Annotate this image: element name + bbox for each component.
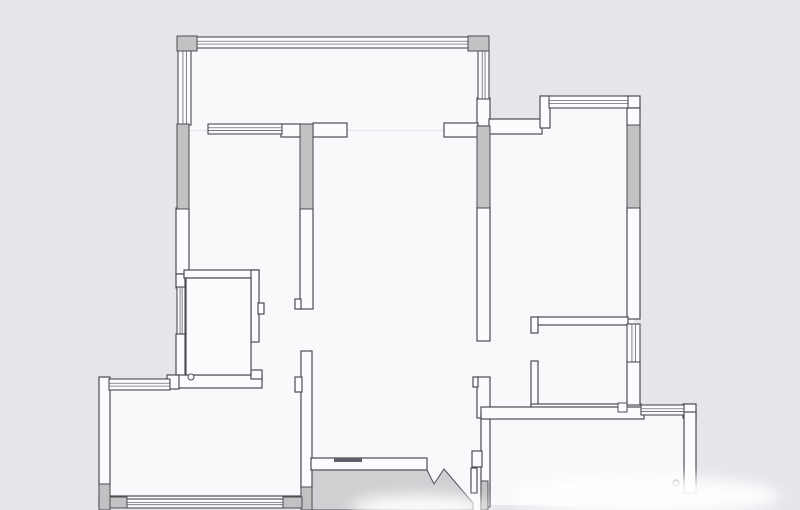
column-top-right (468, 36, 489, 51)
wall-bath-top (184, 270, 259, 278)
floor-bedroom-right-east (542, 100, 634, 412)
drain-bathroom (188, 374, 194, 380)
window-balcony-right (478, 50, 489, 99)
pier-outer-left-bottom (99, 484, 110, 510)
door-threshold (334, 458, 362, 462)
wall-right-upper (477, 207, 490, 341)
fixture-box-smallroom (618, 403, 627, 412)
window-balcony-left (178, 50, 191, 125)
wall-window-cap-topright (627, 96, 640, 108)
wall-left-middle (176, 208, 189, 274)
wall-dining-bottom (311, 458, 427, 470)
window-bottomright-east (641, 405, 684, 415)
wall-stub-living-left (313, 123, 347, 137)
floor-living-room (307, 131, 484, 466)
window-balcony-right-part (478, 50, 489, 99)
wall-topright-middle (627, 207, 640, 319)
pier-bottomleft-sw (110, 497, 127, 508)
window-bedroom-right-north (549, 96, 628, 108)
floor-balcony (182, 42, 485, 130)
floorplan-image (0, 0, 800, 510)
wall-middle-lower (301, 351, 312, 488)
pier-left-wall (177, 124, 189, 209)
floorplan-canvas (0, 0, 800, 510)
window-bedroom-left-north (208, 124, 282, 134)
pier-right-wall (477, 126, 490, 208)
wall-balcony-right-stub (477, 98, 490, 126)
wall-stub-living-right (444, 123, 478, 137)
wall-entry-jamb-a (472, 451, 482, 467)
window-bottomleft-top-part (109, 379, 170, 390)
window-bedroom-left-north-part (208, 124, 282, 134)
wall-smallroom-door-jamb (531, 317, 538, 333)
window-bathroom (177, 287, 185, 334)
window-smallroom-east-part (627, 324, 640, 362)
wall-middle-jamb-lower (295, 377, 302, 392)
pier-bottomleft-se (283, 497, 302, 508)
column-top-left (177, 36, 197, 51)
wall-outer-left (99, 377, 110, 485)
window-smallroom-east (627, 324, 640, 362)
window-bottomright-east-part (641, 405, 684, 415)
window-balcony-top (196, 37, 469, 48)
window-bathroom-part (177, 287, 185, 334)
wall-right-jamb-bump (473, 377, 478, 387)
window-bedroom-right-north-part (549, 96, 628, 108)
wall-bath-door-jamb (251, 370, 262, 379)
window-bottomleft-top (109, 379, 170, 390)
wall-middle-jamb-upper (295, 299, 301, 309)
window-balcony-left-part (178, 50, 191, 125)
wall-bath-inner-outline (186, 278, 251, 375)
window-bottomleft-south (126, 499, 284, 508)
window-bottomleft-south-part (126, 499, 284, 508)
wall-smallroom-right-lower (627, 361, 640, 405)
pier-bottomleft-right (301, 487, 312, 510)
floor-room-bottom-left (104, 382, 300, 507)
wall-step-top-right (489, 119, 542, 134)
wall-bath-left-lower (176, 334, 185, 376)
wall-entry-jamb-b (471, 468, 477, 493)
window-balcony-top-part (196, 37, 469, 48)
wall-smallroom-left (531, 361, 538, 410)
wall-topright-upper (627, 108, 640, 126)
wall-pier-window-end (281, 124, 301, 137)
pier-middle-wall (300, 124, 313, 209)
wall-middle-upper (300, 208, 313, 309)
wall-bath-latch-bump (258, 303, 264, 314)
wall-smallroom-top (537, 317, 628, 325)
pier-topright-wall (627, 125, 640, 208)
